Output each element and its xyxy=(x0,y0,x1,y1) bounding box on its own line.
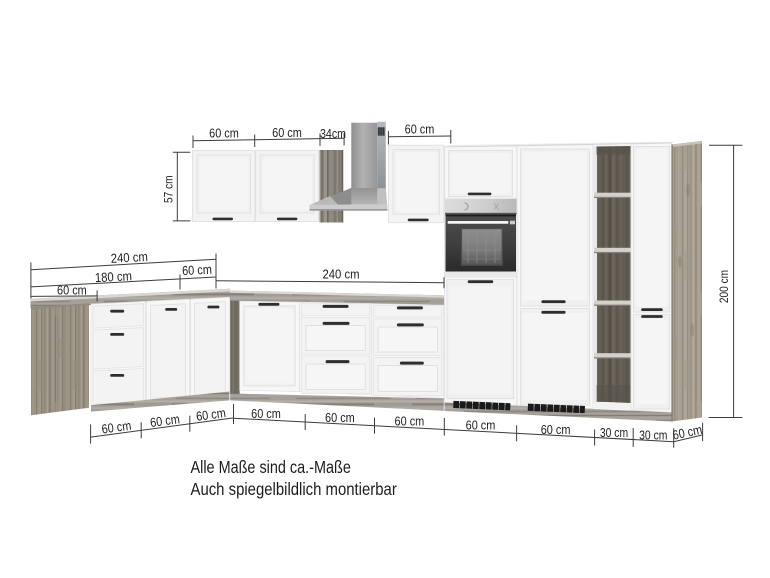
svg-text:30 cm: 30 cm xyxy=(639,428,667,442)
svg-text:60 cm: 60 cm xyxy=(251,406,281,421)
svg-text:60 cm: 60 cm xyxy=(405,121,435,136)
svg-text:60 cm: 60 cm xyxy=(272,125,302,140)
svg-text:60 cm: 60 cm xyxy=(325,410,355,425)
svg-text:60 cm: 60 cm xyxy=(182,262,212,279)
svg-text:Alle Maße sind ca.-Maße: Alle Maße sind ca.-Maße xyxy=(191,458,351,478)
svg-text:57 cm: 57 cm xyxy=(163,175,176,203)
svg-text:30 cm: 30 cm xyxy=(600,426,628,440)
svg-text:240 cm: 240 cm xyxy=(110,249,148,266)
svg-text:60 cm: 60 cm xyxy=(57,283,87,298)
svg-text:60 cm: 60 cm xyxy=(209,125,239,140)
svg-text:Auch spiegelbildlich montierba: Auch spiegelbildlich montierbar xyxy=(191,480,398,499)
svg-text:60 cm: 60 cm xyxy=(466,417,496,432)
svg-text:60 cm: 60 cm xyxy=(395,414,425,429)
svg-text:180 cm: 180 cm xyxy=(94,269,132,286)
svg-text:60 cm: 60 cm xyxy=(541,422,571,437)
svg-text:34cm: 34cm xyxy=(320,126,346,141)
svg-text:240 cm: 240 cm xyxy=(322,267,359,282)
svg-text:200 cm: 200 cm xyxy=(718,270,731,303)
